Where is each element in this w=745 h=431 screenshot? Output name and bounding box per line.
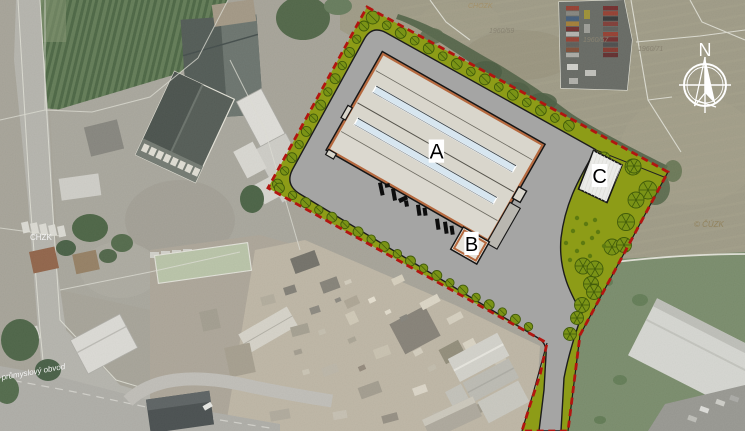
svg-text:A: A (430, 141, 444, 164)
svg-text:B: B (465, 234, 478, 256)
svg-text:C: C (592, 166, 606, 188)
svg-text:N: N (699, 40, 712, 60)
